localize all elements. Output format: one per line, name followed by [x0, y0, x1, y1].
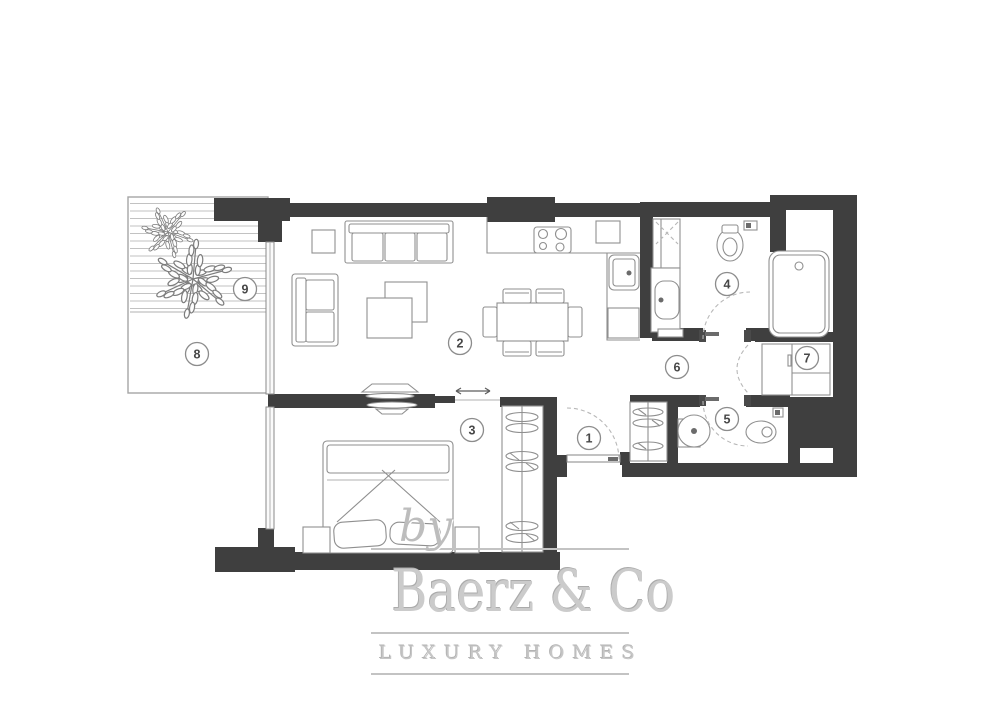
shelving-unit — [630, 402, 667, 461]
nightstand-left — [303, 527, 330, 553]
dining-set — [483, 289, 582, 356]
svg-text:4: 4 — [724, 278, 731, 292]
armchair — [292, 274, 338, 346]
room-label-5: 5 — [716, 408, 739, 431]
kitchen-sink — [609, 255, 639, 290]
sliding-door-indicator — [455, 388, 500, 400]
side-table — [312, 230, 335, 253]
door-swing-closet — [737, 345, 748, 393]
svg-text:3: 3 — [469, 424, 476, 438]
toilet — [746, 408, 783, 443]
bathroom-second — [630, 401, 783, 461]
sofa — [345, 221, 453, 263]
dining-table — [497, 303, 568, 341]
stove — [534, 227, 571, 253]
svg-text:7: 7 — [804, 352, 811, 366]
room-label-9: 9 — [234, 278, 257, 301]
kitchen-appliance — [596, 221, 620, 243]
room-label-8: 8 — [186, 343, 209, 366]
room-label-6: 6 — [666, 356, 689, 379]
pillow — [333, 519, 387, 549]
wardrobe — [502, 406, 543, 552]
kitchen-cabinet — [608, 308, 639, 338]
threshold — [658, 329, 683, 337]
watermark-brand: Baerz & Co — [392, 550, 609, 632]
watermark-by: by — [399, 501, 452, 552]
svg-text:1: 1 — [586, 432, 593, 446]
toilet — [717, 221, 757, 261]
svg-text:2: 2 — [457, 337, 464, 351]
door-swing-bath-main — [703, 292, 750, 339]
washbasin — [651, 268, 680, 332]
watermark-tagline: LUXURY HOMES — [371, 634, 629, 673]
bathtub — [769, 251, 829, 337]
tv-living — [362, 384, 418, 399]
room-label-4: 4 — [716, 273, 739, 296]
watermark: by Baerz & Co LUXURY HOMES — [371, 548, 629, 675]
svg-text:9: 9 — [242, 283, 249, 297]
svg-text:8: 8 — [194, 348, 201, 362]
coffee-tables — [367, 282, 427, 338]
tall-cabinet — [653, 219, 680, 268]
room-label-1: 1 — [578, 427, 601, 450]
round-washbasin — [678, 415, 710, 447]
floor-plan-image: 1 2 3 4 5 6 7 8 — [0, 0, 1000, 709]
room-label-2: 2 — [449, 332, 472, 355]
bathroom-main — [651, 219, 829, 339]
watermark-rule-bottom — [371, 673, 629, 675]
room-label-3: 3 — [461, 419, 484, 442]
svg-text:5: 5 — [724, 413, 731, 427]
room-label-7: 7 — [796, 347, 819, 370]
windows — [266, 242, 274, 529]
double-arrow-icon — [456, 388, 490, 394]
svg-text:6: 6 — [674, 361, 681, 375]
